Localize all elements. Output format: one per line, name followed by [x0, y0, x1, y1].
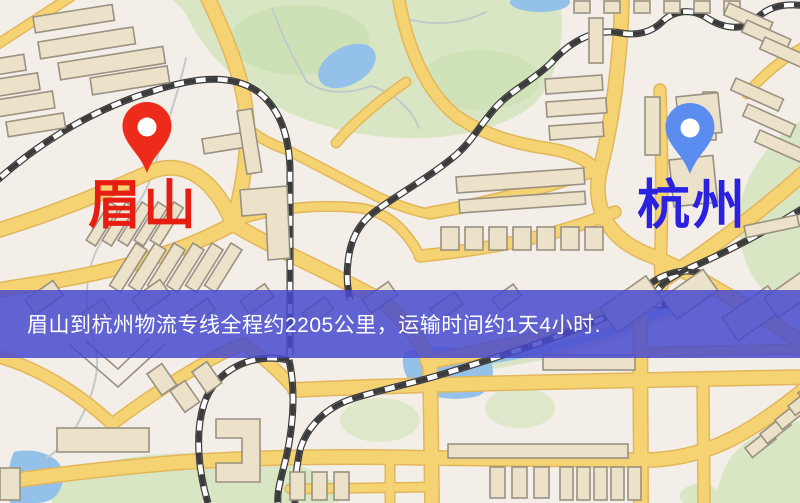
route-info-text: 眉山到杭州物流专线全程约2205公里，运输时间约1天4小时.	[27, 309, 601, 339]
origin-label: 眉山	[88, 176, 198, 235]
route-info-banner: 眉山到杭州物流专线全程约2205公里，运输时间约1天4小时.	[0, 290, 800, 358]
destination-label: 杭州	[637, 176, 747, 235]
map-screenshot: 眉山 杭州 眉山到杭州物流专线全程约2205公里，运输时间约1天4小时.	[0, 0, 800, 503]
map-canvas: 眉山 杭州	[0, 0, 800, 503]
